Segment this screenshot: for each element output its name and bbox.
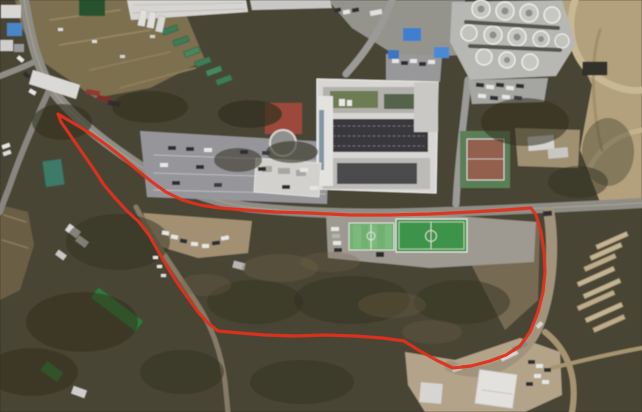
corner-building (14, 44, 24, 52)
parked-car (514, 96, 522, 101)
terrace-shed (150, 35, 155, 38)
equipment-shed (376, 252, 384, 257)
parked-car (186, 147, 194, 151)
parked-car (392, 59, 399, 63)
treatment-tank (555, 34, 569, 48)
hospital-roof-garden (330, 91, 378, 108)
tennis-court (467, 139, 504, 180)
parked-car (506, 86, 514, 91)
tank-hatch (502, 8, 509, 15)
tank-hatch (538, 36, 544, 42)
blue-roof-building (388, 50, 399, 59)
scrub-highlight (358, 292, 426, 318)
depot-car (536, 364, 543, 368)
tank-hatch (514, 34, 521, 41)
corner-building (1, 5, 21, 18)
parked-car (310, 186, 318, 190)
terrace-shed (58, 28, 63, 31)
parked-car (478, 94, 486, 99)
parked-car (419, 62, 426, 66)
parked-car (496, 83, 504, 88)
tree-canopy (481, 98, 569, 146)
parked-car (196, 165, 204, 169)
rooftop-unit (278, 168, 290, 174)
parked-car (486, 85, 494, 90)
parked-car (258, 167, 266, 171)
hospital-south-courtyard (337, 163, 417, 184)
parked-car (262, 151, 270, 155)
tree-canopy (214, 148, 262, 172)
parked-car (214, 183, 222, 187)
low-building-southwest (254, 158, 321, 197)
dark-building-slope (583, 62, 607, 75)
trail-car (153, 256, 158, 259)
treatment-tank (461, 25, 477, 41)
parked-car (401, 61, 408, 65)
treatment-tank (544, 7, 560, 23)
tree-canopy (414, 280, 510, 324)
tree-canopy (140, 350, 224, 394)
map-viewport[interactable] (0, 0, 642, 412)
parked-car (490, 96, 498, 101)
soccer-field (396, 219, 467, 252)
depot-car (528, 360, 535, 364)
parked-car (476, 83, 484, 88)
treatment-tank (476, 49, 492, 65)
parked-car (410, 59, 417, 63)
depot-warehouse (475, 370, 517, 409)
parked-car (332, 234, 340, 238)
depot-car (534, 374, 541, 378)
corner-building (0, 40, 13, 51)
hospital-ne-wing (414, 82, 438, 132)
terrace-shed (92, 40, 97, 43)
parked-car (516, 84, 524, 89)
depot-car (526, 382, 533, 386)
white-building-right (548, 147, 569, 159)
futsal-stripe (385, 225, 392, 248)
teal-roof-house (42, 159, 64, 187)
parked-car (331, 227, 339, 231)
tank-hatch (490, 32, 497, 39)
corner-blue-roof (7, 23, 22, 36)
parked-car (333, 241, 341, 245)
parked-car (172, 181, 180, 185)
parked-car (300, 168, 308, 172)
hospital-glass-strip (319, 110, 324, 170)
treatment-tank (522, 54, 538, 70)
tree-canopy (582, 118, 634, 186)
depot-car (544, 368, 551, 372)
aerial-map-svg[interactable] (0, 0, 642, 412)
hospital-rooftop-mark (347, 100, 352, 106)
tree-canopy (218, 100, 282, 128)
parked-car (240, 150, 248, 154)
parked-car (428, 60, 435, 64)
scrub-highlight (179, 274, 231, 296)
tank-hatch (526, 10, 533, 17)
tree-canopy (250, 360, 354, 404)
trail-car (157, 265, 162, 268)
scrub-highlight (300, 252, 360, 272)
parked-car (204, 148, 212, 152)
blue-roof-building (434, 47, 449, 58)
scrub-highlight (402, 320, 462, 344)
parked-car (191, 242, 198, 247)
terrace-shed (120, 55, 125, 58)
parked-car (168, 146, 176, 150)
futsal-stripe (369, 225, 377, 248)
tank-hatch (504, 57, 510, 63)
parked-car (202, 244, 209, 248)
scene-layer (0, 0, 642, 412)
junction-car (543, 211, 552, 217)
tree-canopy (26, 292, 138, 352)
tree-canopy (112, 91, 188, 123)
depot-car (542, 380, 549, 384)
depot-building (419, 382, 443, 404)
parked-car (502, 95, 510, 100)
dark-green-building (79, 0, 105, 16)
hospital-rooftop-mark (339, 99, 345, 106)
parked-car (160, 163, 168, 167)
trail-car (161, 274, 166, 277)
futsal-stripe (353, 225, 361, 248)
parked-car (334, 248, 342, 252)
parked-car (282, 185, 290, 189)
blue-roof-building (403, 28, 421, 41)
tank-hatch (478, 6, 485, 13)
tree-canopy (266, 141, 318, 163)
